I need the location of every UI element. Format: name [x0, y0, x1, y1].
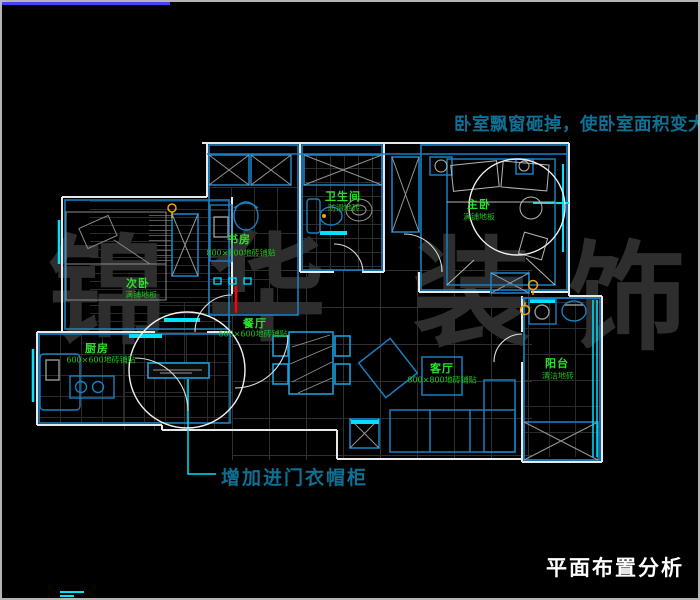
outer-walls [37, 143, 602, 462]
room-label-study: 书房 [227, 231, 251, 247]
room-label-master-bedroom: 主卧 [467, 196, 491, 212]
room-outlines [39, 145, 600, 460]
floor-plan-drawing [2, 2, 700, 600]
cad-viewport: 锦 华 装 饰 [0, 0, 700, 600]
bottom-left-artifact [60, 592, 84, 596]
room-finish-study: 800×800地砖铺贴 [206, 248, 275, 259]
room-finish-kitchen: 600×600地砖铺贴 [66, 355, 135, 366]
room-label-balcony: 阳台 [545, 355, 569, 371]
room-finish-balcony: 清洁地砖 [542, 371, 574, 382]
room-finish-master-bedroom: 满铺地板 [463, 212, 495, 223]
annotation-entry-closet: 增加进门衣帽柜 [221, 463, 368, 490]
sheet-title: 平面布置分析 [546, 552, 684, 582]
room-finish-bathroom: 防滑地砖 [328, 203, 360, 214]
viewport-top-edge-line [2, 2, 170, 5]
entry-closet [148, 363, 216, 474]
room-finish-bedroom2: 满铺地板 [125, 290, 157, 301]
room-finish-living: 800×800地砖铺贴 [407, 375, 476, 386]
windows [33, 164, 597, 457]
furniture [40, 157, 586, 452]
annotation-bay-window: 卧室飘窗砸掉，使卧室面积变大 [454, 111, 700, 136]
room-finish-dining: 600×600地砖铺贴 [218, 329, 287, 340]
